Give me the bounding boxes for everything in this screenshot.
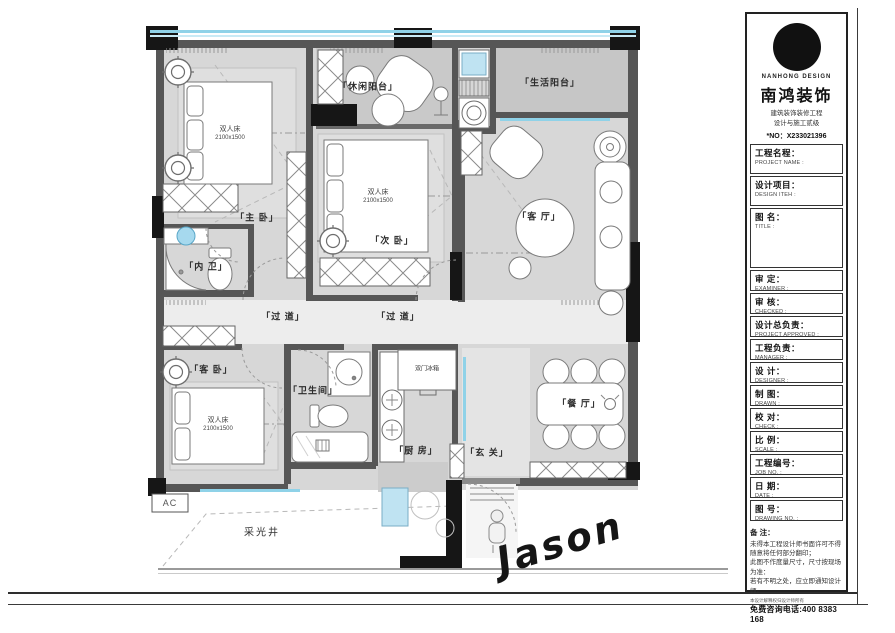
field-checked: 审 核： CHECKED : [750, 293, 843, 314]
label-light-well: 采光井 [244, 524, 280, 539]
bed-label-guest: 双人床2100x1500 [203, 417, 233, 433]
drawing-sheet: 「主 卧」 「次 卧」 「客 厅」 「内 卫」 「客 卧」 「卫生间」 「厨 房… [0, 0, 895, 633]
field-examiner: 审 定： EXAMINER : [750, 270, 843, 291]
bed-size: 2100x1500 [215, 135, 245, 143]
brand-certification: 建筑装饰装修工程 设计与施工贰级 [750, 109, 843, 129]
room-label-entry: 「玄 关」 [465, 446, 509, 459]
room-label-second-bedroom: 「次 卧」 [370, 234, 414, 247]
field-en: DRAWING NO. : [755, 516, 838, 522]
title-block: NANHONG DESIGN 南鸿装饰 建筑装饰装修工程 设计与施工贰级 *NO… [745, 12, 848, 592]
room-label-life-balcony: 「生活阳台」 [520, 76, 580, 89]
nanhong-column-logo-icon [773, 23, 821, 71]
room-label-corridor-1: 「过 道」 [261, 310, 305, 323]
hotline-phone: 免费咨询电话:400 8383 168 [750, 604, 843, 626]
field-project-name: 工程名程： PROJECT NAME : [750, 144, 843, 174]
field-en: PROJECT APPROVED : [755, 332, 838, 338]
brand-name-cn: 南鸿装饰 [750, 82, 843, 106]
room-label-corridor-2: 「过 道」 [376, 310, 420, 323]
field-en: DATE : [755, 493, 838, 499]
bed-label-master: 双人床2100x1500 [215, 126, 245, 142]
sheet-border-bottom-thick [8, 592, 858, 594]
field-cn: 比 例： [755, 434, 838, 446]
bed-name: 双人床 [363, 189, 393, 198]
room-label-bathroom: 「卫生间」 [288, 384, 338, 397]
field-en: DRAWN : [755, 401, 838, 407]
field-en: DESIGNER : [755, 378, 838, 384]
field-en: JOB NO. : [755, 470, 838, 476]
room-label-kitchen: 「厨 房」 [394, 444, 438, 457]
field-project-approved: 设计总负责： PROJECT APPROVED : [750, 316, 843, 337]
field-cn: 工程负责： [755, 342, 838, 354]
field-cn: 校 对： [755, 411, 838, 423]
label-ac: AC [163, 498, 178, 508]
room-label-guest-bedroom: 「客 卧」 [189, 363, 233, 376]
sheet-border-bottom-thin [8, 604, 868, 605]
column-glyph [747, 14, 777, 44]
field-check: 校 对： CHECK : [750, 408, 843, 429]
field-en: SCALE : [755, 447, 838, 453]
field-cn: 审 定： [755, 273, 838, 285]
field-en: DESIGN ITEH : [755, 192, 838, 198]
field-en: CHECK : [755, 424, 838, 430]
room-label-inner-bathroom: 「内 卫」 [184, 260, 228, 273]
bed-name: 双人床 [203, 417, 233, 426]
room-label-master-bedroom: 「主 卧」 [235, 211, 279, 224]
field-cn: 图 号： [755, 503, 838, 515]
field-manager: 工程负责： MANAGER : [750, 339, 843, 360]
sheet-border-right [857, 8, 858, 605]
brand-header: NANHONG DESIGN 南鸿装饰 建筑装饰装修工程 设计与施工贰级 *NO… [750, 17, 843, 141]
field-cn: 审 核： [755, 296, 838, 308]
bed-name: 双人床 [215, 126, 245, 135]
remarks-body: 未得本工程设计师书面许可不得 随意将任何部分翻印； 此图不作度量尺寸，尺寸按现场… [750, 540, 843, 597]
label-fridge: 双门冰箱 [415, 364, 439, 373]
field-drawing-no: 图 号： DRAWING NO. : [750, 500, 843, 521]
field-cn: 日 期： [755, 480, 838, 492]
field-cn: 设计总负责： [755, 319, 838, 331]
brand-name-en: NANHONG DESIGN [750, 74, 843, 80]
remarks-block: 备 注： 未得本工程设计师书面许可不得 随意将任何部分翻印； 此图不作度量尺寸，… [750, 523, 843, 627]
field-cn: 图 名： [755, 211, 838, 223]
room-label-leisure-balcony: 「休闲阳台」 [338, 80, 398, 93]
room-label-dining-room: 「餐 厅」 [557, 397, 601, 410]
field-cn: 工程名程： [755, 147, 838, 159]
field-en: CHECKED : [755, 309, 838, 315]
laundry-area [459, 50, 489, 128]
field-en: EXAMINER : [755, 286, 838, 292]
room-label-living-room: 「客 厅」 [517, 210, 561, 223]
field-job-no: 工程编号： JOB NO. : [750, 454, 843, 475]
bed-size: 2100x1500 [363, 198, 393, 206]
field-design-item: 设计项目： DESIGN ITEH : [750, 176, 843, 206]
field-scale: 比 例： SCALE : [750, 431, 843, 452]
field-designer: 设 计： DESIGNER : [750, 362, 843, 383]
field-cn: 制 图： [755, 388, 838, 400]
field-en: TITLE : [755, 224, 838, 230]
brand-cert-number: *NO：X233021396 [750, 131, 843, 141]
field-en: MANAGER : [755, 355, 838, 361]
field-cn: 工程编号： [755, 457, 838, 469]
field-title: 图 名： TITLE : [750, 208, 843, 268]
floor-plan-drawing [0, 0, 745, 633]
bed-label-second: 双人床2100x1500 [363, 189, 393, 205]
remarks-title: 备 注： [750, 527, 843, 538]
bed-size: 2100x1500 [203, 426, 233, 434]
field-date: 日 期： DATE : [750, 477, 843, 498]
field-cn: 设 计： [755, 365, 838, 377]
field-cn: 设计项目： [755, 179, 838, 191]
field-en: PROJECT NAME : [755, 160, 838, 166]
field-drawn: 制 图： DRAWN : [750, 385, 843, 406]
